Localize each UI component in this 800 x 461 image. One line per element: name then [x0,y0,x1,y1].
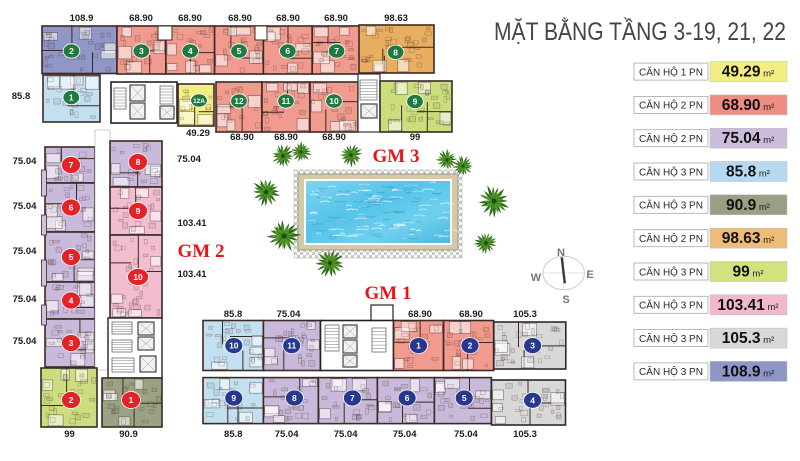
svg-text:75.04: 75.04 [454,429,478,440]
svg-text:68.90: 68.90 [129,13,153,24]
svg-text:3: 3 [139,46,144,56]
svg-text:105.3: 105.3 [513,429,537,440]
svg-text:5: 5 [69,252,74,262]
svg-text:7: 7 [350,393,355,403]
svg-text:CĂN HỘ 3 PN: CĂN HỘ 3 PN [639,299,703,312]
svg-text:CĂN HỘ 2 PN: CĂN HỘ 2 PN [639,132,703,145]
svg-text:CĂN HỘ 2 PN: CĂN HỘ 2 PN [639,99,703,112]
svg-text:CĂN HỘ 2 PN: CĂN HỘ 2 PN [639,232,703,245]
svg-text:9: 9 [136,206,141,216]
svg-text:CĂN HỘ 3 PN: CĂN HỘ 3 PN [639,365,703,378]
svg-text:CĂN HỘ 3 PN: CĂN HỘ 3 PN [639,165,703,178]
svg-text:75.04: 75.04 [13,294,37,305]
svg-text:1: 1 [416,341,421,351]
svg-text:10: 10 [133,272,143,282]
svg-text:99: 99 [410,132,421,143]
svg-text:85.8: 85.8 [224,309,243,320]
svg-text:8: 8 [292,393,297,403]
svg-text:49.29: 49.29 [186,128,210,139]
svg-text:2: 2 [69,395,74,405]
svg-text:75.04: 75.04 [393,429,417,440]
svg-text:CĂN HỘ 3 PN: CĂN HỘ 3 PN [639,199,703,212]
svg-text:68.90: 68.90 [408,309,432,320]
svg-text:68.90: 68.90 [274,132,298,143]
svg-text:99: 99 [64,429,75,440]
svg-text:6: 6 [405,393,410,403]
svg-text:7: 7 [334,46,339,56]
svg-text:105.3: 105.3 [513,309,537,320]
svg-text:GM 2: GM 2 [178,241,225,262]
svg-text:12A: 12A [193,98,205,105]
svg-text:GM 3: GM 3 [373,146,420,167]
svg-text:75.04: 75.04 [277,309,301,320]
svg-text:68.90: 68.90 [228,13,252,24]
svg-text:S: S [562,294,569,306]
svg-text:8: 8 [136,157,141,167]
svg-text:1: 1 [129,395,134,405]
svg-text:4: 4 [188,46,193,56]
svg-text:85.8: 85.8 [224,429,243,440]
svg-text:7: 7 [69,160,74,170]
svg-text:CĂN HỘ 3 PN: CĂN HỘ 3 PN [639,265,703,278]
svg-text:GM 1: GM 1 [365,283,412,304]
svg-text:12: 12 [234,96,244,106]
svg-text:68.90: 68.90 [178,13,202,24]
svg-text:4: 4 [530,395,535,405]
svg-text:75.04: 75.04 [275,429,299,440]
svg-text:8: 8 [393,47,398,57]
svg-text:90.9: 90.9 [119,429,138,440]
svg-text:68.90: 68.90 [324,13,348,24]
svg-text:11: 11 [282,96,291,106]
svg-text:75.04: 75.04 [334,429,358,440]
svg-text:10: 10 [229,341,239,351]
svg-text:5: 5 [462,393,467,403]
svg-text:3: 3 [69,338,74,348]
svg-text:1: 1 [69,93,74,103]
svg-text:2: 2 [468,341,473,351]
svg-text:4: 4 [69,296,74,306]
svg-text:68.90: 68.90 [459,309,483,320]
svg-text:6: 6 [285,46,290,56]
svg-text:75.04: 75.04 [13,336,37,347]
svg-text:68.90: 68.90 [230,132,254,143]
svg-text:75.04: 75.04 [13,201,37,212]
svg-text:103.41: 103.41 [177,269,207,280]
svg-text:75.04: 75.04 [177,154,201,165]
svg-text:9: 9 [231,393,236,403]
svg-text:MẶT BẰNG TẦNG 3-19, 21, 22: MẶT BẰNG TẦNG 3-19, 21, 22 [494,17,786,46]
svg-text:N: N [557,247,565,259]
svg-text:CĂN HỘ 3 PN: CĂN HỘ 3 PN [639,332,703,345]
svg-text:2: 2 [69,46,74,56]
svg-text:68.90: 68.90 [322,132,346,143]
svg-text:68.90: 68.90 [276,13,300,24]
svg-text:103.41: 103.41 [177,218,207,229]
svg-text:E: E [586,269,593,281]
svg-text:6: 6 [69,203,74,213]
svg-text:98.63: 98.63 [384,13,408,24]
svg-text:75.04: 75.04 [13,156,37,167]
svg-text:75.04: 75.04 [13,246,37,257]
svg-text:CĂN HỘ 1 PN: CĂN HỘ 1 PN [639,65,703,78]
svg-text:10: 10 [329,96,339,106]
svg-text:9: 9 [413,97,418,107]
svg-text:108.9: 108.9 [70,13,94,24]
svg-text:W: W [531,272,542,284]
svg-text:3: 3 [530,341,535,351]
svg-text:5: 5 [237,46,242,56]
svg-text:85.8: 85.8 [12,91,31,102]
svg-text:11: 11 [287,341,296,351]
